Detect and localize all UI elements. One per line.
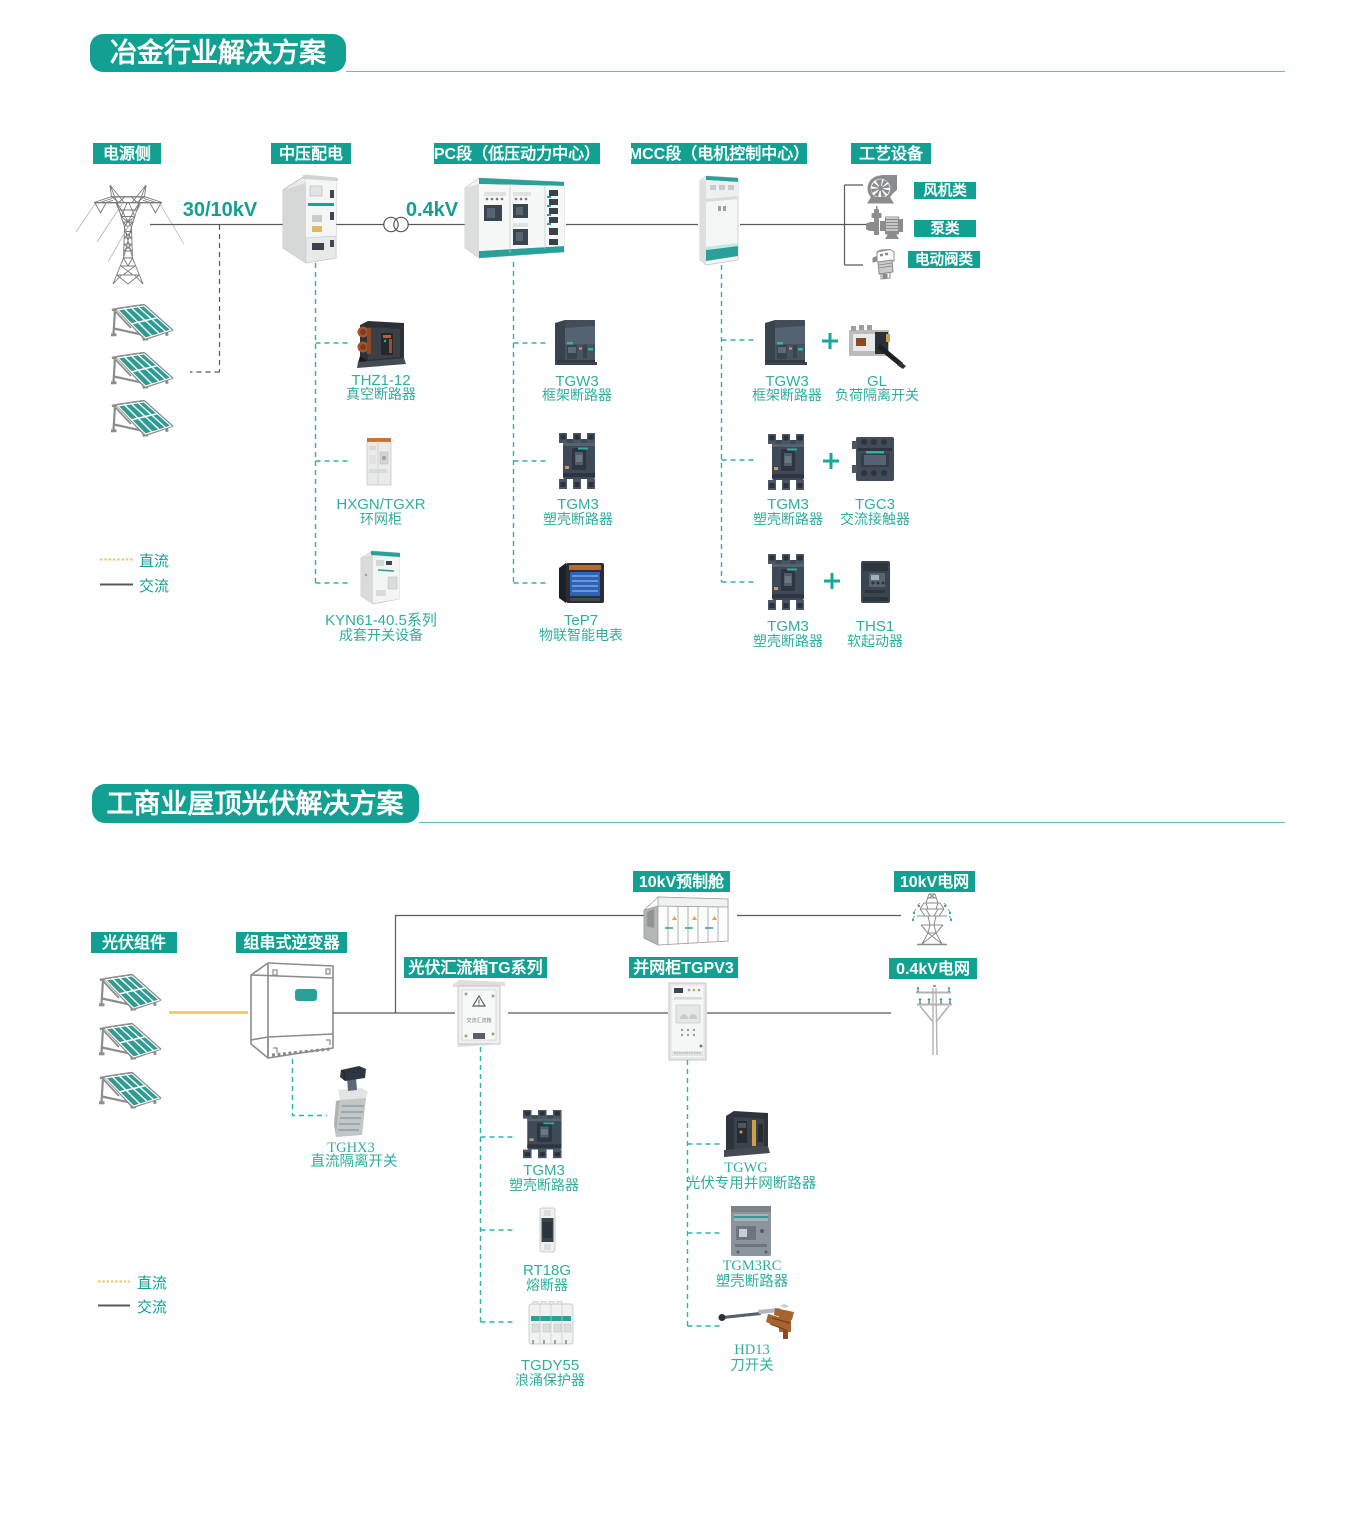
svg-text:刀开关: 刀开关 [730,1357,774,1374]
svg-text:塑壳断路器: 塑壳断路器 [509,1177,579,1193]
svg-text:0.4kV: 0.4kV [406,199,459,221]
svg-text:电动阀类: 电动阀类 [915,251,973,269]
svg-text:光伏组件: 光伏组件 [101,933,166,952]
svg-text:直流隔离开关: 直流隔离开关 [311,1153,398,1170]
svg-text:0.4kV电网: 0.4kV电网 [896,959,970,978]
svg-text:HD13: HD13 [734,1342,769,1358]
svg-text:10kV预制舱: 10kV预制舱 [639,872,725,891]
svg-text:交流接触器: 交流接触器 [840,511,910,527]
svg-text:塑壳断路器: 塑壳断路器 [543,511,613,527]
svg-text:直流: 直流 [139,553,169,570]
svg-text:光伏汇流箱TG系列: 光伏汇流箱TG系列 [407,958,542,977]
svg-text:光伏专用并网断路器: 光伏专用并网断路器 [686,1175,817,1192]
svg-text:塑壳断路器: 塑壳断路器 [753,633,823,649]
svg-text:成套开关设备: 成套开关设备 [339,627,423,643]
svg-text:框架断路器: 框架断路器 [752,387,822,403]
svg-text:交流汇流箱: 交流汇流箱 [466,1017,491,1024]
svg-text:直流: 直流 [137,1275,167,1292]
svg-text:真空断路器: 真空断路器 [346,386,416,402]
svg-text:工商业屋顶光伏解决方案: 工商业屋顶光伏解决方案 [107,788,405,819]
svg-text:中压配电: 中压配电 [279,144,343,163]
svg-text:软起动器: 软起动器 [847,633,903,649]
svg-text:并网柜TGPV3: 并网柜TGPV3 [633,958,734,977]
svg-text:10kV电网: 10kV电网 [900,872,969,891]
svg-text:风机类: 风机类 [923,182,967,200]
svg-text:环网柜: 环网柜 [360,511,402,527]
svg-text:冶金行业解决方案: 冶金行业解决方案 [110,37,327,68]
svg-text:物联智能电表: 物联智能电表 [539,627,623,643]
svg-text:泵类: 泵类 [931,220,960,238]
svg-text:工艺设备: 工艺设备 [859,144,924,163]
svg-text:电源侧: 电源侧 [103,144,151,163]
svg-text:交流: 交流 [137,1298,167,1316]
svg-text:框架断路器: 框架断路器 [542,387,612,403]
svg-text:交流: 交流 [139,577,169,595]
svg-text:PC段（低压动力中心）: PC段（低压动力中心） [434,144,600,163]
svg-text:负荷隔离开关: 负荷隔离开关 [835,387,919,403]
svg-text:TGM3RC: TGM3RC [723,1258,782,1274]
svg-text:30/10kV: 30/10kV [183,199,258,221]
svg-text:塑壳断路器: 塑壳断路器 [753,511,823,527]
svg-text:TGWG: TGWG [724,1160,768,1176]
svg-text:塑壳断路器: 塑壳断路器 [716,1273,789,1290]
svg-text:组串式逆变器: 组串式逆变器 [243,933,340,952]
svg-text:熔断器: 熔断器 [526,1277,568,1293]
svg-text:浪涌保护器: 浪涌保护器 [515,1372,585,1388]
svg-text:MCC段（电机控制中心）: MCC段（电机控制中心） [629,144,809,163]
